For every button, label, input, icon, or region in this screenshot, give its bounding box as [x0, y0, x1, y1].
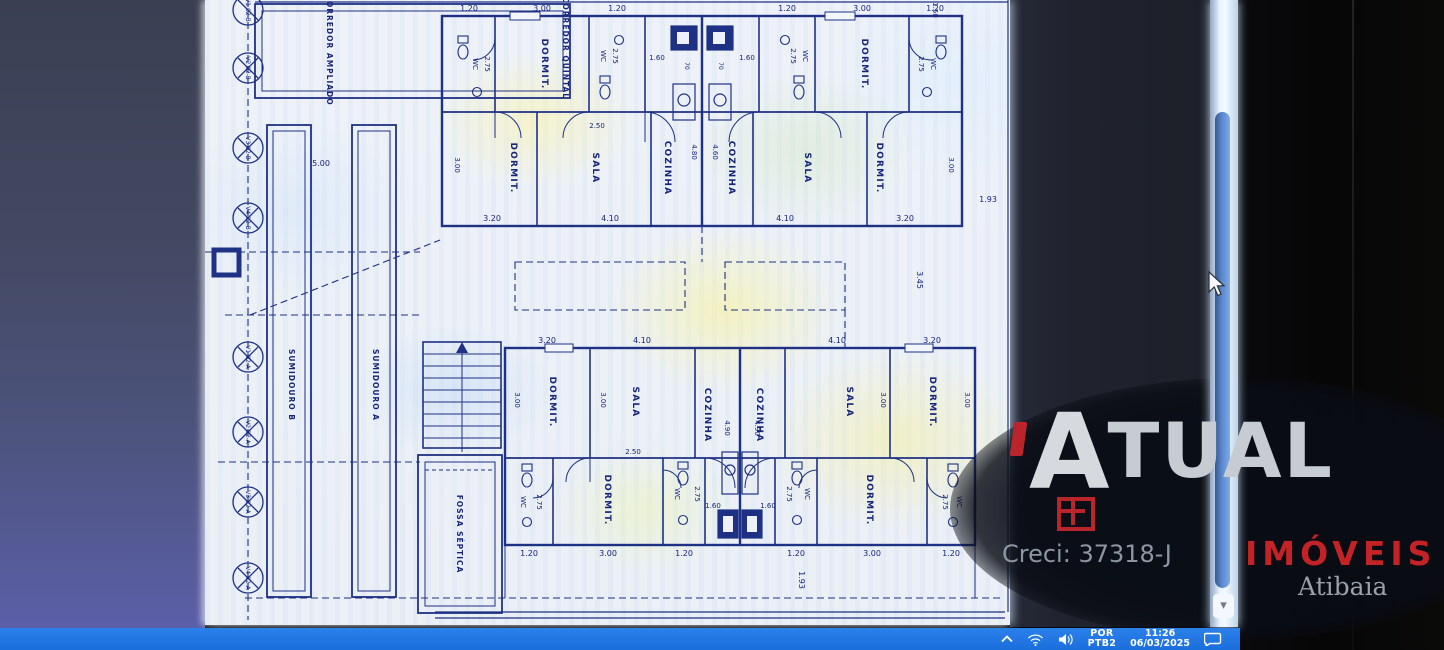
- dim-label: 2.50: [625, 448, 641, 456]
- room-label-cozinha: COZINHA: [702, 388, 712, 443]
- room-label-dormit: DORMIT.: [547, 377, 557, 428]
- room-label-wc: WC: [471, 58, 479, 70]
- sumidouro-a-label: SUMIDOURO A: [371, 349, 380, 421]
- room-label-cozinha: COZINHA: [662, 141, 672, 196]
- watermark-brand: A TUAL: [1012, 408, 1334, 497]
- dim-label: 1.20: [460, 4, 478, 13]
- vent-marker-label: V4 02-B: [244, 206, 251, 230]
- dim-label: 1.93: [979, 195, 997, 204]
- dim-label: 1.60: [649, 54, 665, 62]
- corridor-label: CORREDOR AMPLIADO: [325, 0, 334, 106]
- dim-label: 3.00: [453, 157, 461, 173]
- dim-label: 4.80: [690, 144, 698, 160]
- dim-label: 3.45: [915, 271, 924, 289]
- watermark-window-icon: [1057, 497, 1095, 531]
- dim-label: 1.60: [760, 502, 776, 510]
- dim-label: 1.20: [608, 4, 626, 13]
- dim-label: 3.20: [483, 214, 501, 223]
- vent-marker-label: V3 02-A: [244, 490, 251, 514]
- dim-label: 3.20: [538, 336, 556, 345]
- dim-label: 3.00: [863, 549, 881, 558]
- notification-center-icon[interactable]: [1204, 632, 1222, 646]
- mouse-cursor: [1206, 270, 1228, 302]
- sumidouro-b-label: SUMIDOURO B: [287, 349, 296, 421]
- watermark-brand-initial: A: [1029, 408, 1108, 497]
- room-label-cozinha: COZINHA: [726, 141, 736, 196]
- language-indicator[interactable]: POR PTB2: [1088, 629, 1117, 649]
- windows-taskbar: POR PTB2 11:26 06/03/2025: [0, 628, 1240, 650]
- dim-label: 2.75: [917, 56, 925, 72]
- dim-label: 3.20: [923, 336, 941, 345]
- dim-label: 2.50: [589, 122, 605, 130]
- floorplan-document: V1 02-B V2 02-B V3 02-B V4 02-B V1 02-A …: [205, 0, 1010, 625]
- room-label-dormit: DORMIT.: [539, 39, 549, 90]
- vent-marker-label: V2 02-A: [244, 420, 251, 444]
- courtyard-marks: [515, 226, 845, 348]
- dim-label: 3.00: [947, 157, 955, 173]
- dim-label: 4.10: [776, 214, 794, 223]
- watermark-brand-rest: TUAL: [1108, 408, 1334, 493]
- water-meter-box: [214, 250, 239, 275]
- floorplan-drawing: V1 02-B V2 02-B V3 02-B V4 02-B V1 02-A …: [205, 0, 1010, 625]
- watermark-creci: Creci: 37318-J: [1002, 540, 1172, 568]
- dim-label: 3.00: [963, 392, 971, 408]
- vent-marker-label: V4 02-A: [244, 566, 251, 590]
- room-label-wc: WC: [599, 50, 607, 62]
- dim-label: 4.10: [828, 336, 846, 345]
- dim-label: 2.75: [483, 56, 491, 72]
- room-label-wc: WC: [929, 58, 937, 70]
- dim-label: 4.90: [753, 420, 761, 436]
- bottom-row-walls: [505, 344, 975, 598]
- dim-label: 5.00: [312, 159, 330, 168]
- plan-sheet-edges: [255, 0, 1008, 618]
- top-row-walls: [442, 12, 962, 226]
- cursor-arrow-icon: [1206, 270, 1228, 298]
- dim-label: 3.00: [599, 549, 617, 558]
- dim-label: 1.93: [797, 571, 806, 589]
- desktop-background: [0, 0, 205, 628]
- dim-label: 4.90: [723, 420, 731, 436]
- dim-label: 1.20: [520, 549, 538, 558]
- room-label-wc: WC: [673, 488, 681, 500]
- vent-marker-label: V1 02-B: [244, 0, 251, 22]
- dim-label: 1.50: [931, 2, 939, 18]
- vent-marker-label: V1 02-A: [244, 345, 251, 369]
- dim-label: 2.75: [785, 486, 793, 502]
- room-label-wc: WC: [519, 496, 527, 508]
- dim-label: 3.00: [513, 392, 521, 408]
- dim-label: 2.75: [535, 494, 543, 510]
- dim-label: 3.00: [599, 392, 607, 408]
- room-label-wc: WC: [801, 50, 809, 62]
- dim-label: 4.60: [711, 144, 719, 160]
- corridor-label: CORREDOR QUINTAL: [561, 0, 570, 99]
- dim-label: 1.20: [942, 549, 960, 558]
- dim-label: 1.60: [739, 54, 755, 62]
- photographed-screen: V1 02-B V2 02-B V3 02-B V4 02-B V1 02-A …: [0, 0, 1444, 650]
- dim-label: 3.20: [896, 214, 914, 223]
- speaker-icon[interactable]: [1058, 633, 1074, 646]
- dim-label: 1.20: [675, 549, 693, 558]
- dim-label: 3.00: [533, 4, 551, 13]
- room-label-sala: SALA: [590, 153, 600, 184]
- chevron-down-icon: ▾: [1220, 598, 1227, 613]
- watermark-red-tick-icon: [1010, 422, 1028, 456]
- dim-label: 2.75: [611, 48, 619, 64]
- watermark-segment: IMÓVEIS: [1245, 534, 1436, 573]
- room-label-dormit: DORMIT.: [927, 377, 937, 428]
- vent-marker-label: V3 02-B: [244, 136, 251, 160]
- room-label-dormit: DORMIT.: [508, 143, 518, 194]
- room-label-sala: SALA: [844, 387, 854, 418]
- dim-label: 70: [683, 62, 690, 70]
- tray-chevron-up-icon[interactable]: [1001, 635, 1013, 643]
- staircase: [423, 342, 501, 452]
- room-label-wc: WC: [803, 488, 811, 500]
- scrollbar-down-button[interactable]: ▾: [1213, 594, 1234, 618]
- dim-label: 1.20: [787, 549, 805, 558]
- dim-label: 2.75: [941, 494, 949, 510]
- dim-label: 70: [717, 62, 724, 70]
- vent-marker-label: V2 02-B: [244, 56, 251, 80]
- dim-label: 1.60: [705, 502, 721, 510]
- keyboard-layout: PTB2: [1088, 639, 1117, 649]
- room-label-dormit: DORMIT.: [859, 39, 869, 90]
- scrollbar-thumb[interactable]: [1215, 112, 1230, 588]
- dim-label: 1.20: [778, 4, 796, 13]
- clock-date: 06/03/2025: [1130, 639, 1190, 649]
- dim-label: 3.00: [853, 4, 871, 13]
- wifi-icon[interactable]: [1027, 633, 1044, 646]
- dim-label: 2.75: [693, 486, 701, 502]
- room-label-sala: SALA: [802, 153, 812, 184]
- room-label-dormit: DORMIT.: [874, 143, 884, 194]
- fossa-septica-label: FOSSA SÉPTICA: [455, 495, 464, 574]
- dim-label: 3.00: [879, 392, 887, 408]
- room-label-dormit: DORMIT.: [602, 475, 612, 526]
- dim-label: 2.75: [789, 48, 797, 64]
- dim-label: 4.10: [601, 214, 619, 223]
- room-label-dormit: DORMIT.: [864, 475, 874, 526]
- vertical-scrollbar[interactable]: ▾: [1210, 0, 1238, 627]
- dim-label: 4.10: [633, 336, 651, 345]
- watermark-city: Atibaia: [1298, 572, 1387, 601]
- taskbar-clock[interactable]: 11:26 06/03/2025: [1130, 629, 1190, 649]
- room-label-sala: SALA: [630, 387, 640, 418]
